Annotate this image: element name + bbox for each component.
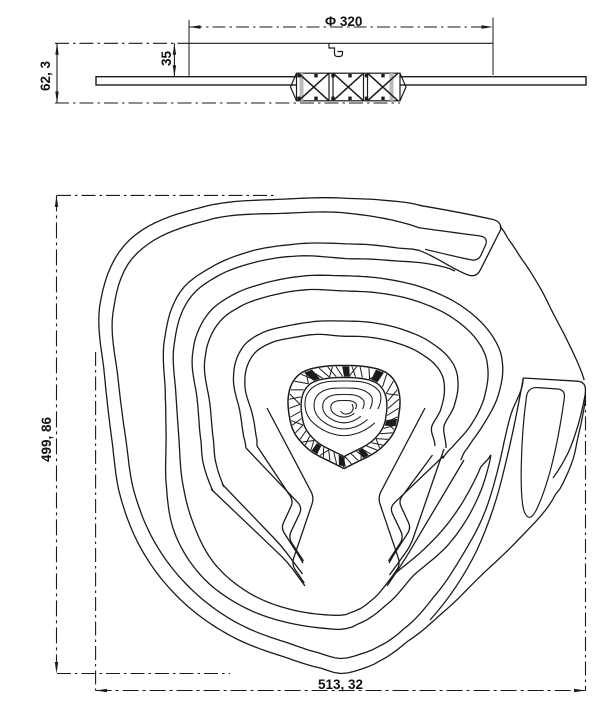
svg-text:499, 86: 499, 86	[39, 416, 54, 462]
svg-text:35: 35	[159, 50, 174, 66]
svg-text:513, 32: 513, 32	[318, 677, 363, 692]
svg-text:62, 3: 62, 3	[38, 60, 53, 91]
svg-text:Φ 320: Φ 320	[325, 14, 362, 29]
